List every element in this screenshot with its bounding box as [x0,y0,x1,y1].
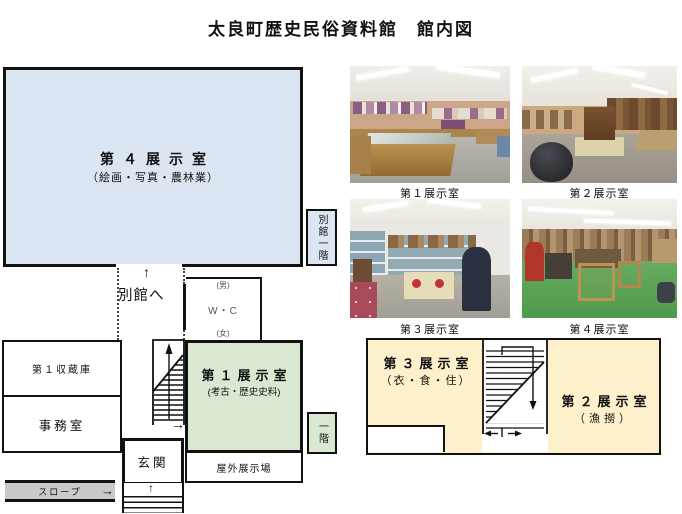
dark-bag [657,282,676,302]
page-title: 太良町歴史民俗資料館 館内図 [0,15,682,40]
red-crest [435,279,444,288]
annex-first-floor-label: 別館一階 [308,211,335,264]
staircase-floor2 [482,340,548,452]
up-arrow-icon: ↑ [143,265,150,279]
floor2-cutout-room [368,425,445,452]
room-3-exhibition: 第３展示室 （衣・食・住） [370,353,482,388]
up-arrow-icon: ↑ [148,481,154,495]
platform [575,137,625,156]
room-2-label: 第２展示室 [556,391,651,410]
floral-chair [350,282,377,318]
ceiling [350,199,510,229]
room-4-exhibition: 第４展示室 （絵画・写真・農林業） [3,67,303,267]
loom-frame [618,261,641,288]
office-label: 事務室 [39,415,86,434]
shelf-items [522,110,572,129]
display-case-side [350,136,371,173]
right-arrow-icon: → [101,484,114,497]
blue-panel [497,136,510,157]
entrance-steps: ↑ [122,483,184,513]
ceiling [522,199,677,231]
wall-artifacts [607,98,677,131]
wc-female-label: (女) [216,328,229,339]
first-floor-tag-box: 一階 [307,412,337,454]
room-4-label: 第４展示室 [91,149,215,169]
room-2-sublabel: （漁撈） [574,410,634,426]
shelf [652,239,677,263]
room-3-sublabel: （衣・食・住） [381,372,472,388]
picture-frames [432,108,507,119]
corridor-dotted-line [117,268,119,340]
storage-room-1-label: 第１収蔵庫 [32,361,92,376]
loom-frame [578,263,615,301]
wc-male-label: (男) [216,280,229,291]
room-1-exhibition: 第１展示室 (考古・歴史史料) [185,340,303,453]
dark-machine [545,253,571,279]
uniform-coat [462,247,491,311]
exhibit-photo-room1 [350,66,510,183]
room-4-sublabel: （絵画・写真・農林業） [87,169,219,185]
second-floor-plan: 第３展示室 （衣・食・住） 第２展示室 （漁撈） [366,338,661,455]
to-annex-label: 別館へ [118,284,165,305]
exhibit-photo-room2 [522,66,677,183]
picture-frames [353,102,427,114]
first-floor-tag-label: 一階 [309,414,335,452]
display-case [636,130,677,150]
museum-floor-map-page: 太良町歴史民俗資料館 館内図 第４展示室 （絵画・写真・農林業） 別館一階 ↑ … [0,0,682,514]
step-lines [124,496,182,513]
outdoor-exhibit-label: 屋外展示場 [217,460,272,475]
wooden-machine [584,107,615,140]
storage-boxes [388,235,476,248]
outdoor-exhibit-area: 屋外展示場 [185,453,303,483]
wc-room: (男) W・C (女) [186,277,262,340]
room-1-label: 第１展示室 [196,365,291,384]
room-3-label: 第３展示室 [378,353,473,372]
display-case-base [360,144,455,176]
red-machine [525,242,544,281]
right-arrow-icon: → [171,417,185,431]
entrance-room: 玄関 [122,438,184,483]
staircase-floor1 [152,339,185,425]
ramp: スロープ [5,480,115,502]
entrance-label: 玄関 [137,452,168,471]
room-1-sublabel: (考古・歴史史料) [208,384,281,398]
storage-room-1: 第１収蔵庫 [2,340,122,397]
corridor-dotted-line [183,268,185,284]
annex-first-floor-box: 別館一階 [306,209,337,266]
office-room: 事務室 [2,397,122,453]
exhibit-photo-room3 [350,199,510,318]
large-pot [530,142,573,182]
exhibit-photo-room4 [522,199,677,318]
photo-caption-room3: 第３展示室 [350,321,510,337]
room-2-exhibition: 第２展示室 （漁撈） [550,391,658,426]
ramp-label: スロープ [38,485,81,498]
photo-caption-room4: 第４展示室 [522,321,677,337]
wc-label: W・C [208,302,238,317]
